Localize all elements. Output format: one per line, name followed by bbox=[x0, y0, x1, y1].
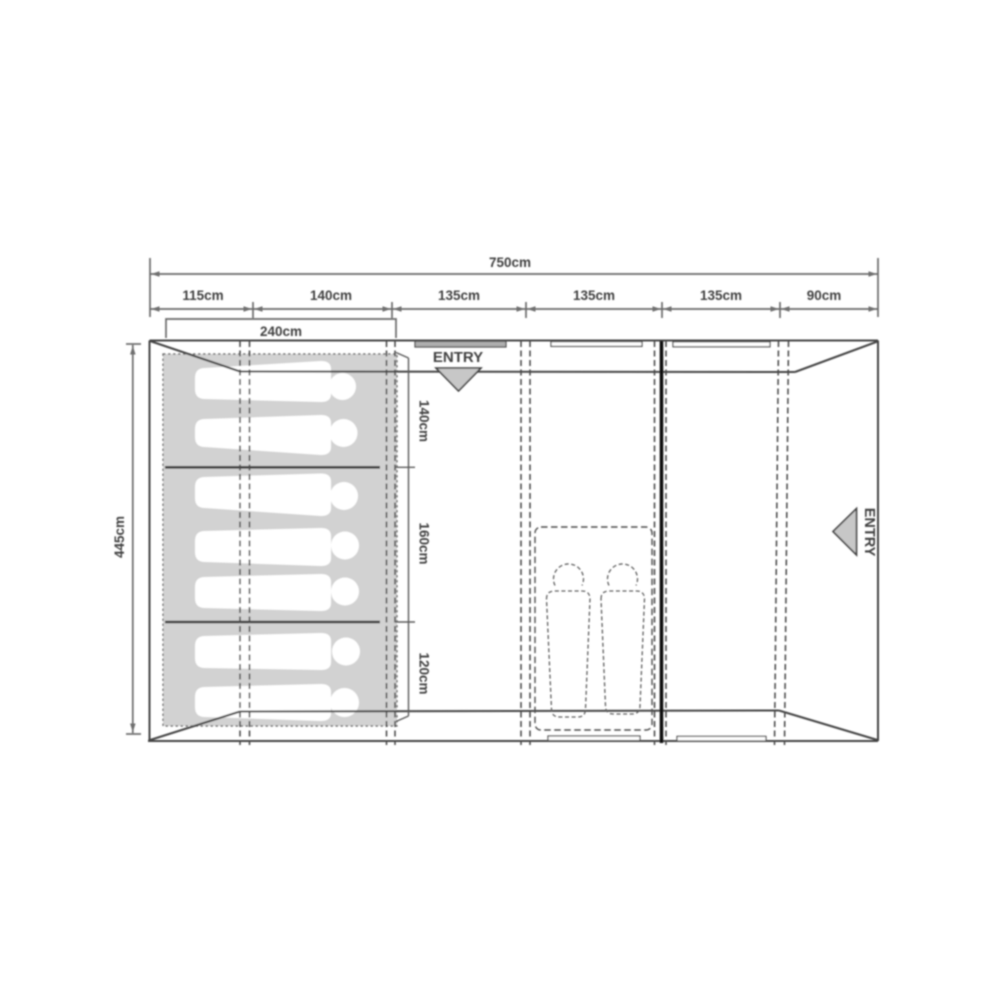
svg-text:140cm: 140cm bbox=[310, 288, 352, 303]
svg-text:135cm: 135cm bbox=[700, 288, 742, 303]
svg-text:750cm: 750cm bbox=[489, 255, 531, 270]
svg-text:135cm: 135cm bbox=[573, 288, 615, 303]
svg-text:120cm: 120cm bbox=[417, 652, 432, 694]
svg-text:ENTRY: ENTRY bbox=[861, 508, 877, 557]
svg-text:240cm: 240cm bbox=[260, 324, 302, 339]
svg-text:115cm: 115cm bbox=[182, 288, 223, 303]
svg-text:160cm: 160cm bbox=[417, 522, 432, 564]
svg-text:445cm: 445cm bbox=[112, 516, 127, 558]
svg-text:140cm: 140cm bbox=[417, 400, 432, 442]
svg-text:ENTRY: ENTRY bbox=[433, 349, 483, 366]
svg-text:135cm: 135cm bbox=[438, 288, 480, 303]
svg-text:90cm: 90cm bbox=[807, 288, 842, 303]
